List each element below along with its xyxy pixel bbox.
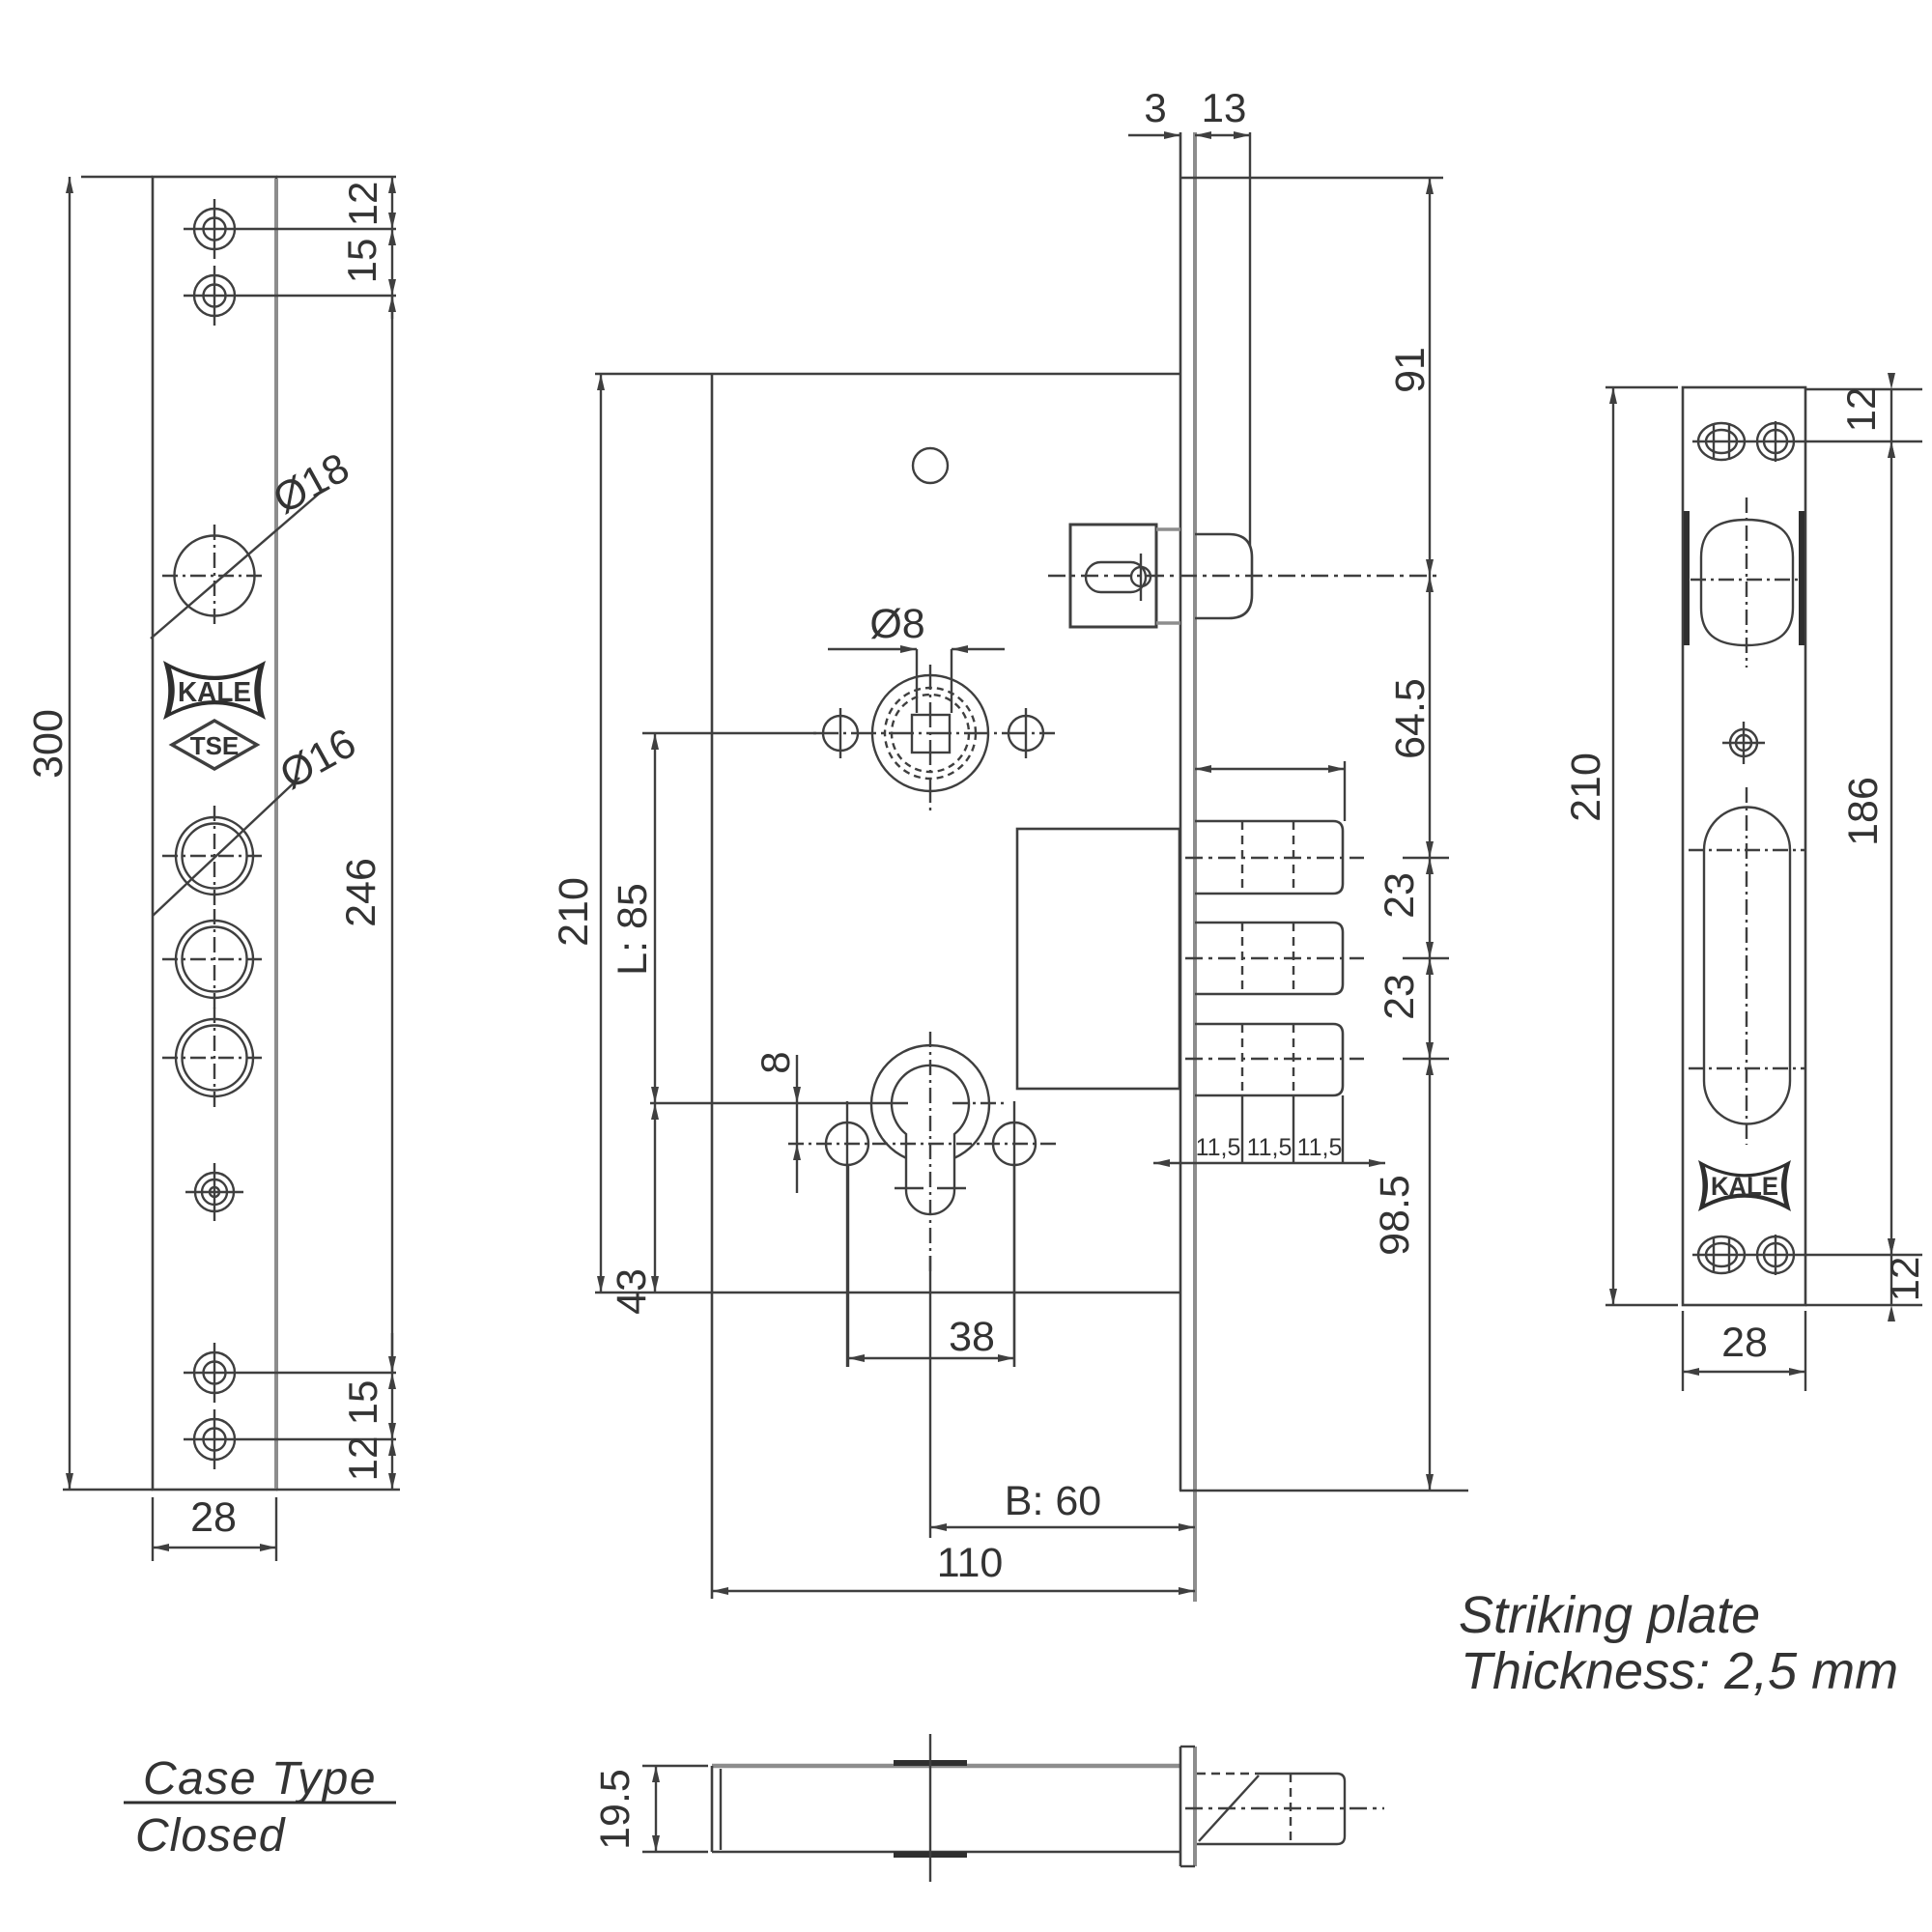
svg-text:11,5: 11,5 [1247, 1134, 1293, 1161]
svg-text:19.5: 19.5 [592, 1769, 639, 1850]
svg-text:210: 210 [551, 877, 597, 947]
svg-text:38: 38 [949, 1314, 995, 1360]
svg-text:L: 85: L: 85 [610, 883, 656, 976]
svg-text:11,5: 11,5 [1196, 1134, 1241, 1161]
svg-text:Striking plate: Striking plate [1459, 1586, 1760, 1644]
svg-text:Case Type: Case Type [143, 1753, 377, 1804]
svg-text:B: 60: B: 60 [1005, 1478, 1101, 1524]
svg-text:15: 15 [339, 239, 384, 284]
svg-text:15: 15 [340, 1380, 385, 1426]
svg-text:210: 210 [1563, 753, 1609, 822]
svg-text:12: 12 [1838, 387, 1884, 433]
svg-text:12: 12 [1882, 1257, 1927, 1302]
svg-text:64.5: 64.5 [1387, 678, 1434, 759]
svg-text:11,5: 11,5 [1297, 1134, 1343, 1161]
svg-text:TSE: TSE [190, 731, 240, 760]
svg-text:28: 28 [1721, 1320, 1768, 1366]
svg-text:43: 43 [609, 1268, 655, 1315]
svg-text:Thickness: 2,5 mm: Thickness: 2,5 mm [1461, 1642, 1898, 1700]
svg-text:23: 23 [1377, 872, 1423, 919]
svg-text:3: 3 [1144, 85, 1166, 130]
svg-text:98.5: 98.5 [1372, 1175, 1418, 1256]
svg-text:Ø18: Ø18 [266, 444, 356, 523]
svg-text:23: 23 [1377, 974, 1423, 1020]
svg-text:Ø8: Ø8 [869, 601, 924, 647]
svg-text:KALE: KALE [1711, 1172, 1778, 1201]
svg-text:Ø16: Ø16 [272, 720, 363, 798]
svg-text:28: 28 [190, 1494, 237, 1541]
svg-text:91: 91 [1387, 347, 1434, 393]
svg-text:300: 300 [25, 709, 71, 779]
svg-text:246: 246 [338, 858, 384, 927]
svg-text:12: 12 [340, 1436, 385, 1482]
svg-text:186: 186 [1840, 777, 1887, 846]
svg-text:Closed: Closed [135, 1810, 286, 1861]
svg-text:110: 110 [937, 1540, 1004, 1586]
svg-text:13: 13 [1202, 85, 1247, 130]
svg-text:KALE: KALE [178, 677, 251, 708]
svg-text:12: 12 [340, 182, 385, 227]
svg-text:8: 8 [753, 1051, 798, 1073]
